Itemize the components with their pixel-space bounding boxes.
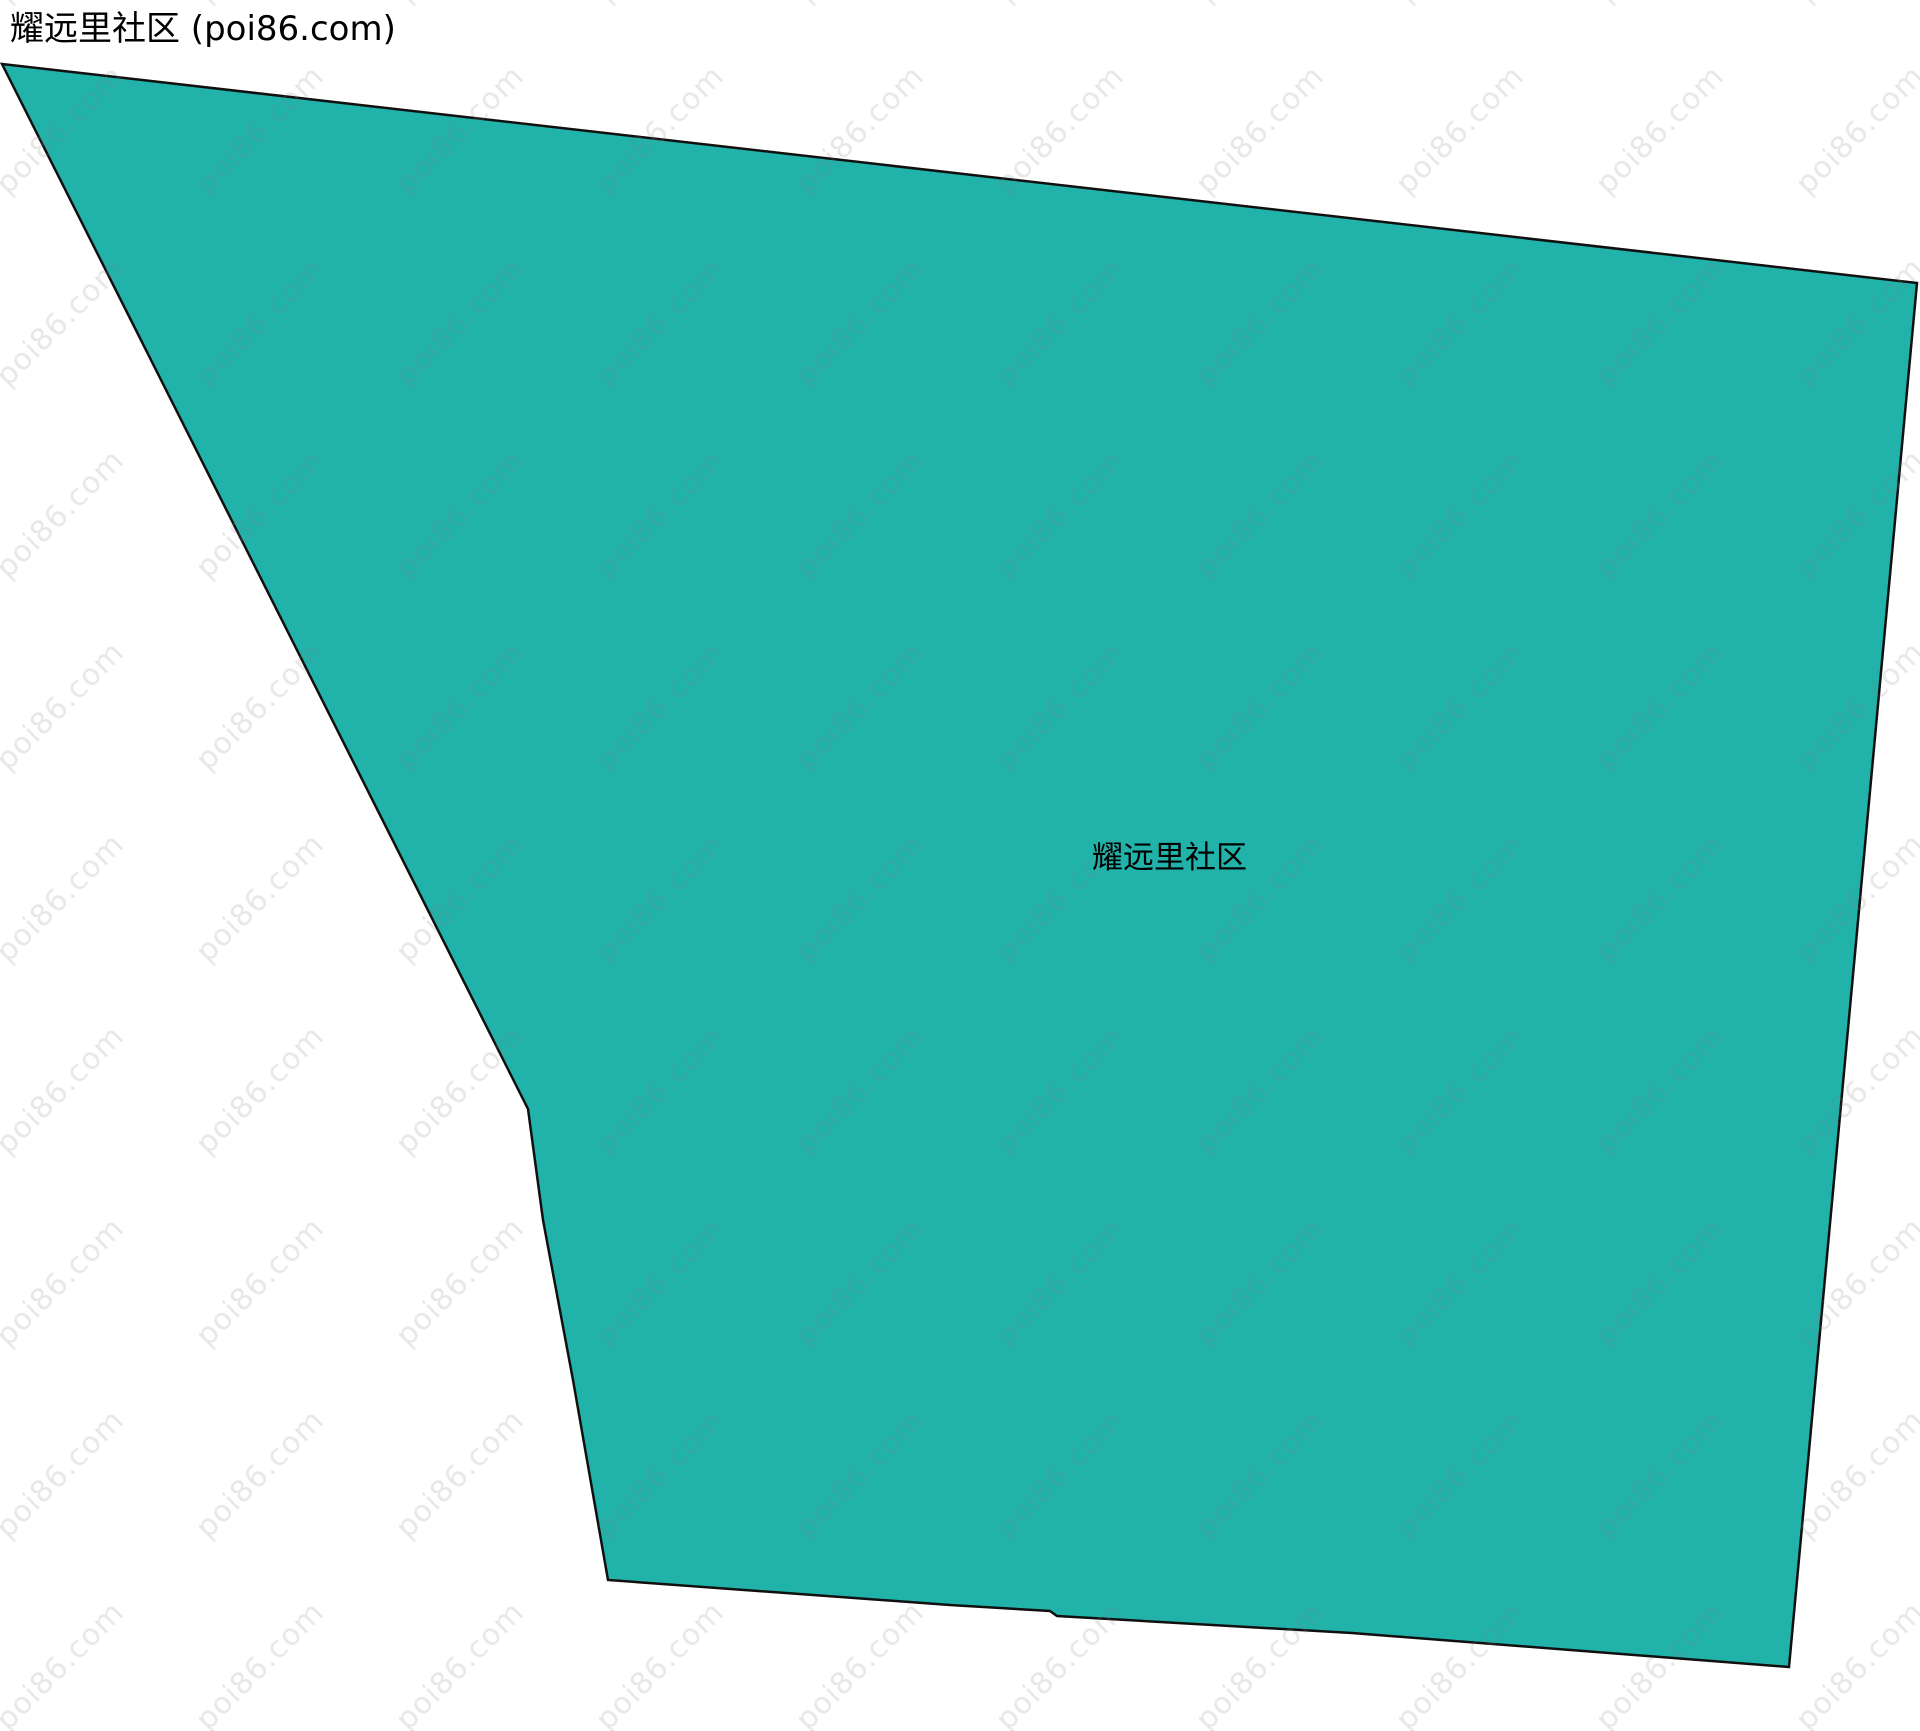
map-canvas [0,0,1920,1731]
region-label: 耀远里社区 [1092,840,1247,877]
region-polygon [2,64,1917,1667]
page-title: 耀远里社区 (poi86.com) [10,8,396,51]
map-stage: poi86.compoi86.compoi86.compoi86.compoi8… [0,0,1920,1731]
